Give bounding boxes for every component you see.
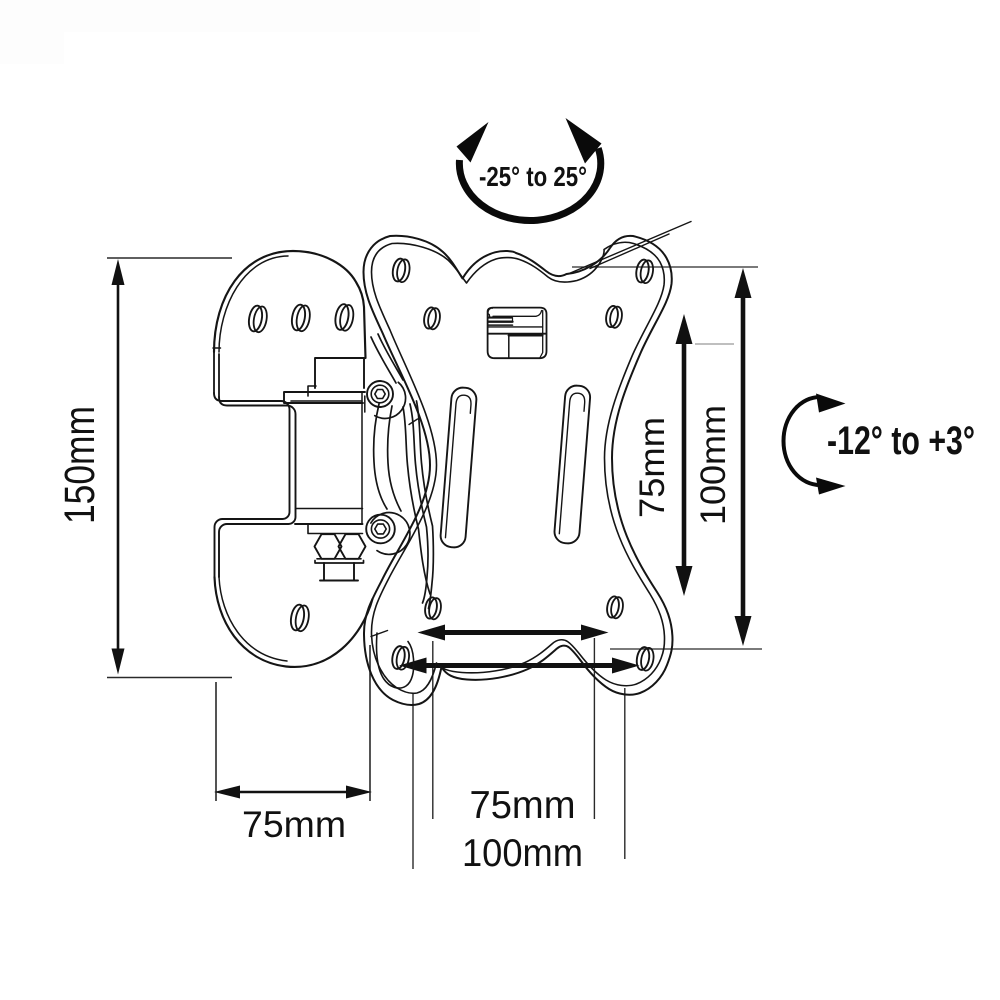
- svg-text:-25° to 25°: -25° to 25°: [479, 161, 587, 192]
- svg-text:75mm: 75mm: [470, 784, 576, 827]
- svg-text:100mm: 100mm: [694, 405, 733, 525]
- svg-text:100mm: 100mm: [462, 832, 583, 875]
- svg-text:75mm: 75mm: [242, 803, 346, 845]
- svg-text:-12° to +3°: -12° to +3°: [827, 419, 975, 463]
- svg-text:150mm: 150mm: [56, 406, 104, 524]
- svg-text:75mm: 75mm: [633, 417, 672, 518]
